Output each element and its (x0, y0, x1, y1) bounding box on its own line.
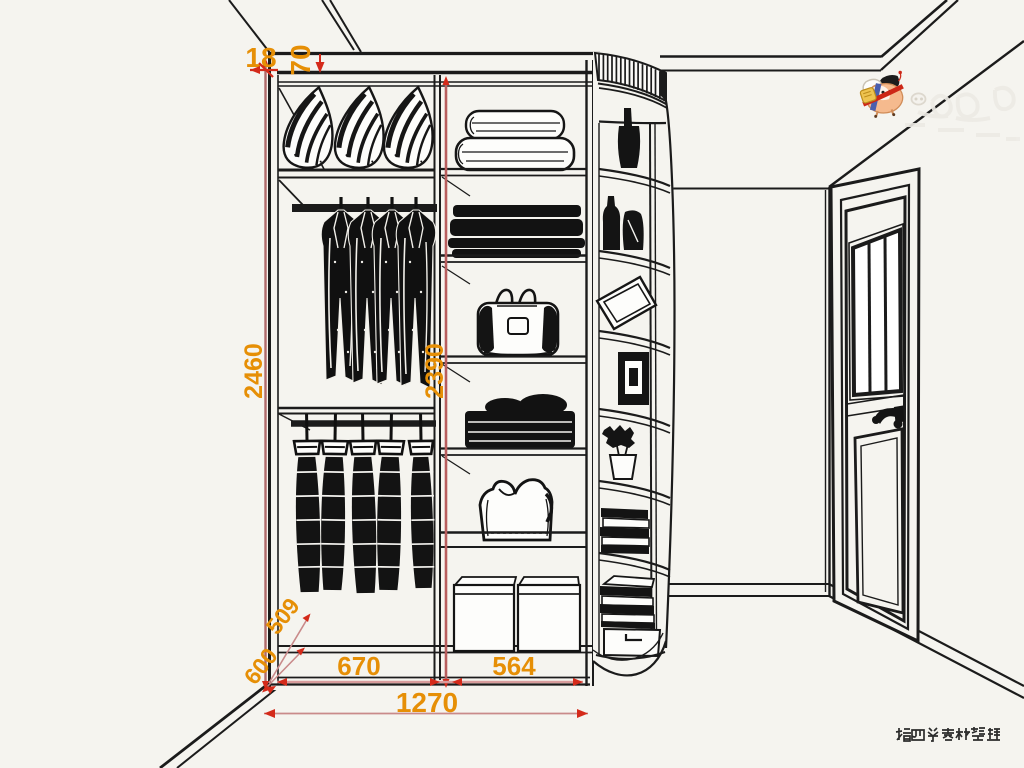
svg-text:70: 70 (285, 44, 316, 75)
svg-text:2390: 2390 (421, 343, 449, 399)
svg-text:18: 18 (245, 42, 276, 73)
svg-text:1270: 1270 (396, 687, 458, 718)
svg-text:670: 670 (337, 651, 380, 681)
svg-text:564: 564 (492, 651, 536, 681)
svg-text:2460: 2460 (240, 343, 268, 399)
